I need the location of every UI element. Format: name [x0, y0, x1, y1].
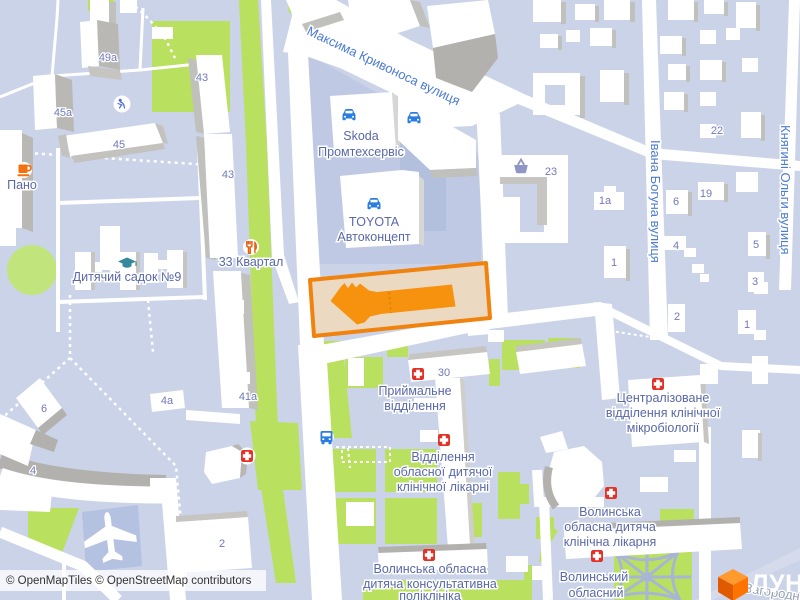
svg-text:Skoda: Skoda: [343, 129, 378, 143]
svg-text:2: 2: [219, 538, 225, 550]
svg-text:обласна дитяча: обласна дитяча: [564, 520, 656, 534]
svg-text:Автоконцепт: Автоконцепт: [337, 230, 410, 244]
svg-text:30: 30: [438, 367, 450, 379]
svg-text:© OpenMapTiles © OpenStreetMap: © OpenMapTiles © OpenStreetMap contribut…: [6, 575, 252, 587]
svg-text:Волинський: Волинський: [560, 570, 628, 584]
svg-text:відділення клінічної: відділення клінічної: [606, 406, 721, 420]
svg-text:4а: 4а: [161, 395, 174, 407]
svg-text:49а: 49а: [99, 52, 118, 64]
svg-text:41а: 41а: [239, 391, 258, 403]
svg-text:45а: 45а: [54, 107, 73, 119]
svg-text:4: 4: [673, 240, 679, 252]
svg-text:22: 22: [711, 125, 723, 137]
svg-text:клінічна лікарня: клінічна лікарня: [564, 535, 657, 549]
svg-text:Централізоване: Централізоване: [617, 391, 710, 405]
svg-text:Волинська обласна: Волинська обласна: [373, 562, 486, 576]
svg-text:клінічної лікарні: клінічної лікарні: [397, 480, 489, 494]
svg-text:обласний: обласний: [569, 586, 624, 600]
svg-text:TOYOTA: TOYOTA: [349, 215, 400, 229]
svg-text:мікробіології: мікробіології: [627, 421, 700, 435]
svg-text:43: 43: [196, 72, 208, 84]
svg-text:43: 43: [222, 169, 234, 181]
svg-text:1: 1: [611, 257, 617, 269]
svg-text:Івана Богуна вулиця: Івана Богуна вулиця: [648, 140, 663, 263]
svg-text:Приймальне: Приймальне: [378, 384, 451, 398]
svg-text:1а: 1а: [599, 195, 612, 207]
svg-text:23: 23: [545, 166, 557, 178]
svg-text:1: 1: [744, 319, 750, 331]
svg-text:Княгині Ольги вулиця: Княгині Ольги вулиця: [778, 125, 793, 255]
svg-text:Пано: Пано: [7, 178, 37, 192]
svg-text:відділення: відділення: [384, 399, 446, 413]
svg-text:6: 6: [673, 196, 679, 208]
svg-text:6: 6: [41, 403, 47, 415]
svg-text:Дитячий садок №9: Дитячий садок №9: [73, 270, 182, 284]
svg-text:3: 3: [752, 276, 758, 288]
svg-text:ЛУН: ЛУН: [751, 570, 800, 598]
svg-text:Промтехсервіс: Промтехсервіс: [318, 145, 404, 159]
svg-text:Волинська: Волинська: [579, 505, 641, 519]
svg-text:2: 2: [674, 311, 680, 323]
svg-text:4: 4: [30, 465, 36, 477]
svg-text:обласної дитячої: обласної дитячої: [394, 465, 493, 479]
svg-text:поліклініка: поліклініка: [399, 589, 461, 600]
svg-text:19: 19: [700, 188, 712, 200]
svg-text:33 Квартал: 33 Квартал: [219, 255, 284, 269]
svg-text:5: 5: [753, 239, 759, 251]
svg-text:45: 45: [113, 139, 125, 151]
svg-text:Відділення: Відділення: [411, 450, 474, 464]
